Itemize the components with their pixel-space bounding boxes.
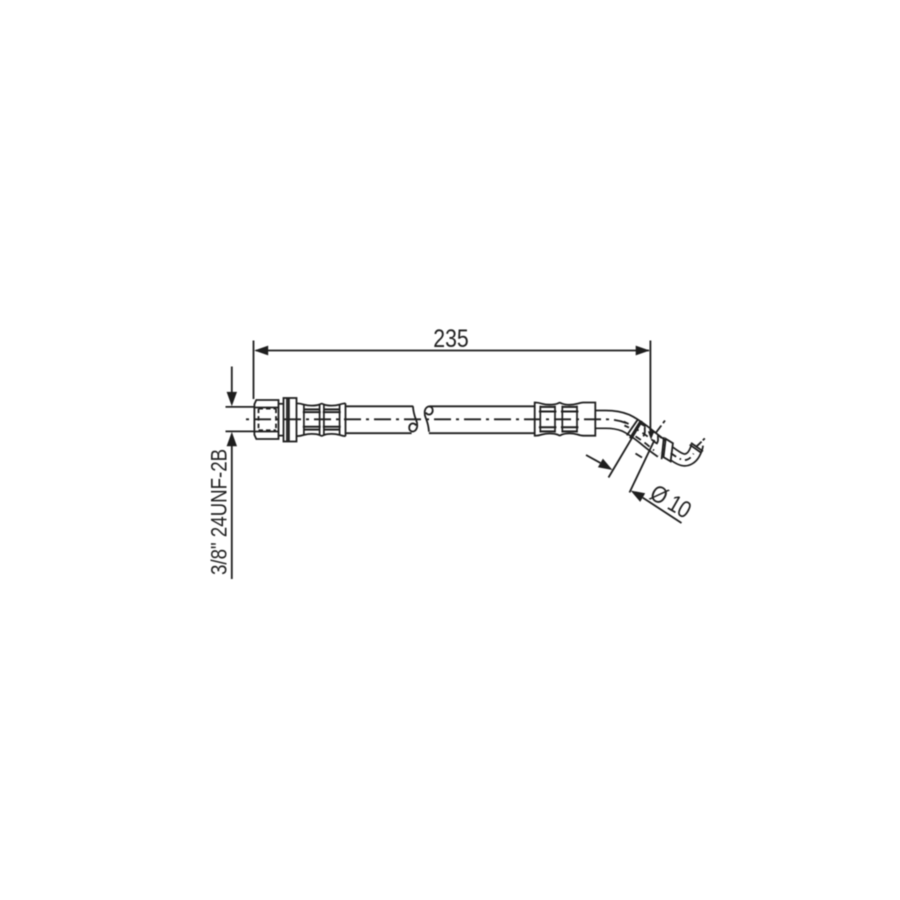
svg-text:Ø 10: Ø 10 (646, 479, 696, 523)
svg-text:3/8" 24UNF-2B: 3/8" 24UNF-2B (208, 449, 232, 575)
svg-text:235: 235 (433, 324, 468, 352)
